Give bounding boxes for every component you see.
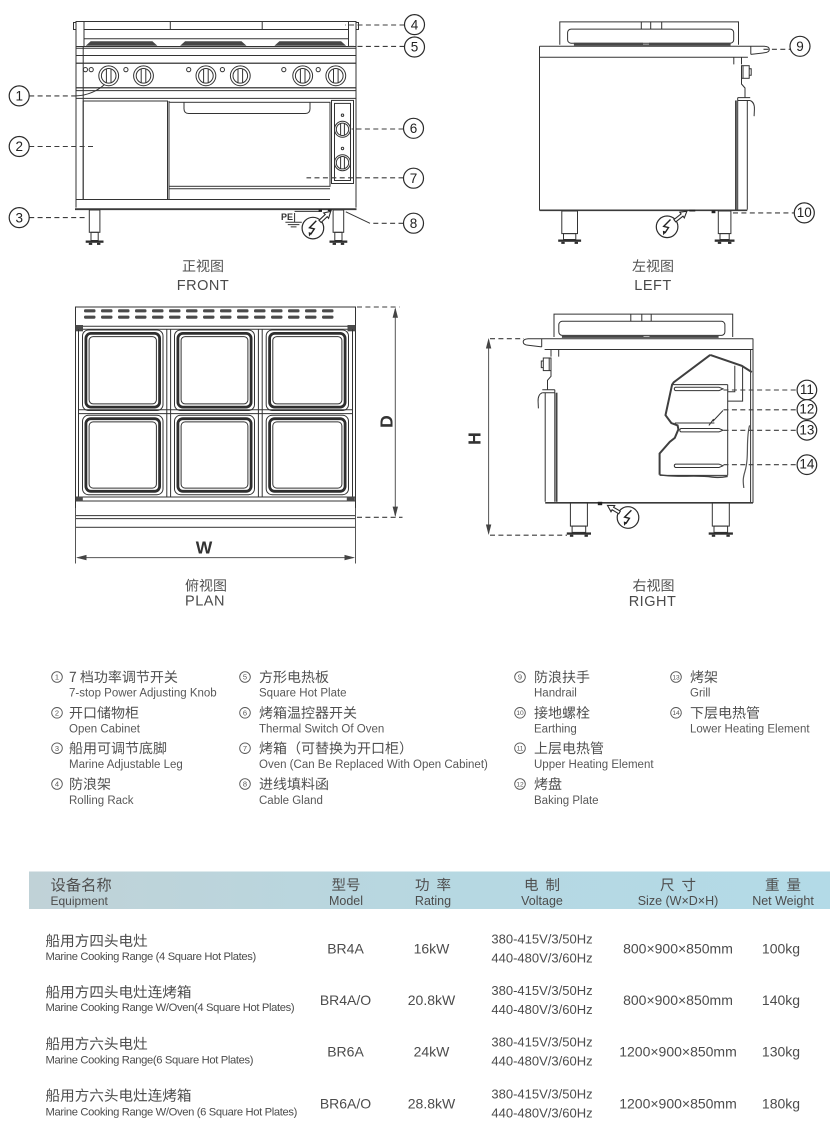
svg-text:14: 14 bbox=[672, 710, 680, 717]
svg-text:800×900×850mm: 800×900×850mm bbox=[623, 940, 733, 956]
svg-text:Upper Heating Element: Upper Heating Element bbox=[534, 759, 654, 771]
svg-text:Equipment: Equipment bbox=[51, 894, 109, 908]
svg-text:24kW: 24kW bbox=[414, 1044, 451, 1060]
svg-text:1200×900×850mm: 1200×900×850mm bbox=[619, 1095, 737, 1111]
svg-text:Marine Cooking Range (4 Square: Marine Cooking Range (4 Square Hot Plate… bbox=[46, 951, 257, 963]
svg-text:100kg: 100kg bbox=[762, 940, 800, 956]
svg-text:Lower Heating Element: Lower Heating Element bbox=[690, 723, 810, 735]
svg-text:Handrail: Handrail bbox=[534, 688, 577, 700]
svg-text:800×900×850mm: 800×900×850mm bbox=[623, 992, 733, 1008]
svg-text:Marine Cooking Range W/Oven (6: Marine Cooking Range W/Oven (6 Square Ho… bbox=[46, 1107, 298, 1119]
svg-text:RIGHT: RIGHT bbox=[629, 594, 677, 610]
svg-text:BR6A: BR6A bbox=[327, 1044, 364, 1060]
svg-text:1: 1 bbox=[55, 673, 59, 682]
svg-text:180kg: 180kg bbox=[762, 1095, 800, 1111]
svg-text:Rating: Rating bbox=[415, 894, 451, 908]
svg-text:D: D bbox=[377, 415, 397, 428]
svg-text:1200×900×850mm: 1200×900×850mm bbox=[619, 1044, 737, 1060]
svg-text:10: 10 bbox=[797, 205, 812, 220]
svg-text:7: 7 bbox=[410, 171, 418, 186]
svg-text:PE: PE bbox=[281, 212, 293, 222]
svg-text:11: 11 bbox=[517, 746, 524, 753]
svg-text:Oven (Can Be Replaced With Ope: Oven (Can Be Replaced With Open Cabinet) bbox=[259, 759, 488, 771]
svg-text:380-415V/3/50Hz: 380-415V/3/50Hz bbox=[491, 931, 592, 946]
svg-text:Thermal Switch Of Oven: Thermal Switch Of Oven bbox=[259, 723, 384, 735]
svg-text:Size (W×D×H): Size (W×D×H) bbox=[638, 894, 719, 908]
svg-text:440-480V/3/60Hz: 440-480V/3/60Hz bbox=[491, 1106, 592, 1121]
svg-text:13: 13 bbox=[799, 422, 814, 437]
svg-text:14: 14 bbox=[799, 457, 815, 472]
svg-text:Square Hot Plate: Square Hot Plate bbox=[259, 688, 347, 700]
svg-text:440-480V/3/60Hz: 440-480V/3/60Hz bbox=[491, 1002, 592, 1017]
svg-text:H: H bbox=[465, 432, 485, 445]
svg-text:Model: Model bbox=[329, 894, 363, 908]
svg-text:W: W bbox=[196, 538, 213, 558]
svg-text:BR4A/O: BR4A/O bbox=[320, 992, 371, 1008]
svg-text:Net Weight: Net Weight bbox=[752, 894, 814, 908]
svg-text:4: 4 bbox=[55, 780, 59, 789]
svg-text:7: 7 bbox=[243, 744, 247, 753]
svg-text:11: 11 bbox=[800, 382, 814, 397]
svg-text:3: 3 bbox=[55, 744, 59, 753]
svg-text:5: 5 bbox=[411, 40, 419, 55]
svg-text:Marine Cooking Range(6 Square: Marine Cooking Range(6 Square Hot Plates… bbox=[46, 1054, 254, 1066]
svg-text:440-480V/3/60Hz: 440-480V/3/60Hz bbox=[491, 1054, 592, 1069]
svg-text:380-415V/3/50Hz: 380-415V/3/50Hz bbox=[491, 983, 592, 998]
svg-text:LEFT: LEFT bbox=[634, 278, 671, 294]
svg-text:140kg: 140kg bbox=[762, 992, 800, 1008]
svg-text:BR4A: BR4A bbox=[327, 940, 364, 956]
svg-text:Marine Cooking Range W/Oven(4: Marine Cooking Range W/Oven(4 Square Hot… bbox=[46, 1002, 295, 1014]
svg-text:20.8kW: 20.8kW bbox=[408, 992, 456, 1008]
svg-text:380-415V/3/50Hz: 380-415V/3/50Hz bbox=[491, 1086, 592, 1101]
svg-text:Open Cabinet: Open Cabinet bbox=[69, 723, 141, 735]
svg-text:PLAN: PLAN bbox=[185, 594, 225, 610]
svg-text:Cable Gland: Cable Gland bbox=[259, 795, 323, 807]
svg-text:1: 1 bbox=[15, 89, 23, 104]
svg-text:3: 3 bbox=[15, 210, 23, 225]
svg-text:8: 8 bbox=[410, 216, 418, 231]
svg-text:130kg: 130kg bbox=[762, 1044, 800, 1060]
svg-text:6: 6 bbox=[410, 121, 418, 136]
svg-text:12: 12 bbox=[799, 402, 814, 417]
svg-text:Voltage: Voltage bbox=[521, 894, 563, 908]
svg-text:FRONT: FRONT bbox=[177, 278, 229, 294]
svg-text:4: 4 bbox=[411, 17, 419, 32]
svg-text:9: 9 bbox=[518, 673, 522, 682]
svg-text:6: 6 bbox=[243, 709, 247, 718]
svg-text:Marine Adjustable Leg: Marine Adjustable Leg bbox=[69, 759, 183, 771]
svg-text:16kW: 16kW bbox=[414, 940, 451, 956]
svg-text:Grill: Grill bbox=[690, 688, 710, 700]
svg-text:440-480V/3/60Hz: 440-480V/3/60Hz bbox=[491, 951, 592, 966]
svg-text:Baking Plate: Baking Plate bbox=[534, 795, 599, 807]
svg-text:380-415V/3/50Hz: 380-415V/3/50Hz bbox=[491, 1035, 592, 1050]
svg-text:28.8kW: 28.8kW bbox=[408, 1095, 456, 1111]
svg-text:5: 5 bbox=[243, 673, 247, 682]
svg-text:9: 9 bbox=[796, 39, 804, 54]
svg-text:2: 2 bbox=[15, 139, 23, 154]
svg-text:8: 8 bbox=[243, 780, 247, 789]
svg-text:7-stop Power Adjusting Knob: 7-stop Power Adjusting Knob bbox=[69, 688, 217, 700]
svg-text:2: 2 bbox=[55, 709, 59, 718]
svg-text:Rolling Rack: Rolling Rack bbox=[69, 795, 134, 807]
svg-text:10: 10 bbox=[516, 710, 524, 717]
svg-text:Earthing: Earthing bbox=[534, 723, 577, 735]
svg-text:BR6A/O: BR6A/O bbox=[320, 1095, 371, 1111]
svg-text:13: 13 bbox=[672, 674, 680, 681]
svg-text:12: 12 bbox=[516, 781, 524, 788]
